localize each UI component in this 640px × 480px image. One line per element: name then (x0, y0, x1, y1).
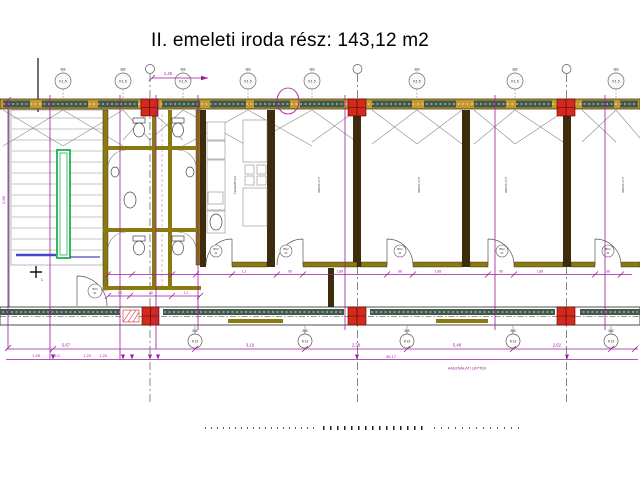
wc-block (103, 110, 201, 290)
svg-text:K1.5: K1.5 (511, 80, 518, 84)
kitchen-room: TEAKONYHA (200, 110, 275, 267)
svg-text:K1.5: K1.5 (179, 80, 186, 84)
column (348, 307, 366, 325)
svg-text:68: 68 (499, 270, 503, 274)
svg-text:K13: K13 (192, 340, 198, 344)
room-label: IRODA 17,5 (504, 177, 508, 193)
svg-text:2,0: 2,0 (54, 353, 60, 358)
svg-text:8|8: 8|8 (511, 329, 516, 333)
svg-text:68: 68 (288, 270, 292, 274)
door-bubble: BK2 21 (496, 245, 508, 257)
grid-axis-circle (146, 65, 155, 74)
svg-text:21: 21 (214, 251, 218, 255)
svg-text:21: 21 (500, 251, 504, 255)
column (348, 99, 366, 116)
window-bubble: K1.5 8|8 (507, 68, 523, 100)
room-label: IRODA 17,5 (417, 177, 421, 193)
svg-text:K1.5: K1.5 (244, 80, 251, 84)
svg-text:8|8: 8|8 (181, 68, 186, 72)
window-bubble: K1.5 8|8 (608, 68, 624, 100)
door-dimension-chain: 1,2 68 1,88 68 1,88 68 1,88 68 (105, 270, 632, 278)
corridor-wall-stub (328, 268, 334, 308)
svg-text:8|8: 8|8 (405, 329, 410, 333)
svg-text:1,25: 1,25 (99, 353, 108, 358)
svg-text:8|8: 8|8 (303, 329, 308, 333)
svg-text:68: 68 (149, 291, 153, 295)
window-bubble: K1.5 8|8 (304, 68, 320, 100)
total-dimension: 36,17 (386, 354, 397, 359)
sink (111, 167, 119, 177)
svg-text:K1.5: K1.5 (59, 80, 66, 84)
survey-cross-marker: 1 (30, 266, 43, 282)
svg-text:1,28: 1,28 (32, 353, 41, 358)
svg-text:1,45: 1,45 (164, 71, 173, 76)
svg-text:K13: K13 (404, 340, 410, 344)
grid-axis-circle (562, 65, 571, 74)
kitchen-tables (243, 120, 267, 226)
svg-text:8|8: 8|8 (61, 68, 66, 72)
svg-text:1,2: 1,2 (242, 270, 247, 274)
svg-text:K13: K13 (302, 340, 308, 344)
svg-text:K1.5: K1.5 (119, 80, 126, 84)
column (142, 307, 159, 325)
grid-bubble: 8|8 K13 (400, 325, 414, 348)
svg-text:1,2: 1,2 (118, 291, 123, 295)
svg-text:8|8: 8|8 (513, 68, 518, 72)
svg-text:2,38: 2,38 (352, 343, 361, 348)
svg-text:2,62: 2,62 (553, 343, 562, 348)
window-swing-lines (3, 110, 640, 146)
door-bubble: BK2 21 (280, 245, 292, 257)
window-bubble: K1.5 8|8 (55, 68, 71, 100)
svg-text:8|8: 8|8 (415, 68, 420, 72)
svg-text:1,88: 1,88 (435, 270, 441, 274)
svg-text:K1.5: K1.5 (308, 80, 315, 84)
stair-handrail (57, 150, 70, 258)
room-label: IRODA 17,5 (317, 177, 321, 193)
svg-text:21: 21 (398, 251, 402, 255)
column (557, 99, 575, 116)
svg-text:21: 21 (93, 291, 97, 295)
door-bubble: BK2 21 (602, 245, 614, 257)
floorplan-page: { "title": "II. emeleti iroda rész: 143,… (0, 0, 640, 480)
door-mark-bubbles: BK2 21 BK2 21 BK2 21 BK2 21 BK2 21 (88, 245, 614, 298)
svg-text:K1.5: K1.5 (612, 80, 619, 84)
svg-text:1,88: 1,88 (537, 270, 543, 274)
window-bubble: K1.5 8|8 (240, 68, 256, 100)
window-bubble: K1.5 8|8 (115, 68, 131, 100)
svg-text:1: 1 (41, 278, 43, 282)
grid-bubble: 8|8 K13 (188, 325, 202, 348)
svg-text:1,20: 1,20 (83, 353, 92, 358)
svg-text:8|8: 8|8 (246, 68, 251, 72)
svg-text:1,2: 1,2 (184, 291, 189, 295)
sink (186, 167, 194, 177)
room-label: TEAKONYHA (233, 176, 237, 195)
kitchen-counter (207, 122, 225, 233)
svg-text:5,67: 5,67 (62, 343, 71, 348)
svg-text:8|8: 8|8 (121, 68, 126, 72)
window-bubble: K1.5 8|8 (175, 68, 191, 100)
window-mark-bubbles: K1.5 8|8 K1.5 8|8 K1.5 8|8 K1.5 8|8 K1.5… (55, 68, 624, 100)
svg-text:68: 68 (606, 270, 610, 274)
office-labels: IRODA 17,5 IRODA 17,5 IRODA 17,5 IRODA 1… (317, 177, 625, 193)
grid-axis-circle (353, 65, 362, 74)
svg-text:21: 21 (284, 251, 288, 255)
door-bubble: BK2 21 (88, 284, 102, 298)
svg-text:21: 21 (606, 251, 610, 255)
door-bubble: BK2 21 (210, 245, 222, 257)
svg-text:2,98: 2,98 (1, 195, 6, 204)
column (141, 99, 158, 116)
top-exterior-wall (0, 99, 640, 146)
svg-text:3,19: 3,19 (246, 343, 255, 348)
svg-text:5,48: 5,48 (453, 343, 462, 348)
svg-text:8|8: 8|8 (609, 329, 614, 333)
door-bubble: BK2 21 (394, 245, 406, 257)
hatched-marker (123, 310, 139, 322)
svg-text:8|8: 8|8 (193, 329, 198, 333)
svg-text:K1.5: K1.5 (413, 80, 420, 84)
sink (124, 192, 136, 208)
svg-text:8|8: 8|8 (310, 68, 315, 72)
room-label: IRODA 17,5 (621, 177, 625, 193)
kitchen-sink (210, 214, 222, 230)
footer-note: HASZNÁLATI LÉPTÉK (448, 366, 487, 371)
bottom-dimension-lines: 5,67 3,19 2,38 5,48 2,62 1,28 2,0 1,20 1… (6, 343, 638, 371)
grid-bubble: 8|8 K13 (604, 325, 618, 348)
grid-bubble: 8|8 K13 (506, 325, 520, 348)
svg-text:1,88: 1,88 (337, 270, 343, 274)
svg-text:K13: K13 (510, 340, 516, 344)
floorplan-canvas: K1.5 8|8 K1.5 8|8 K1.5 8|8 K1.5 8|8 K1.5… (0, 0, 640, 480)
bottom-exterior-wall (0, 307, 640, 325)
grid-bubble: 8|8 K13 (298, 325, 312, 348)
svg-text:68: 68 (398, 270, 402, 274)
column (557, 307, 575, 325)
svg-text:K13: K13 (608, 340, 614, 344)
window-strips (3, 101, 638, 108)
svg-text:8|8: 8|8 (614, 68, 619, 72)
window-bubble: K1.5 8|8 (409, 68, 425, 100)
